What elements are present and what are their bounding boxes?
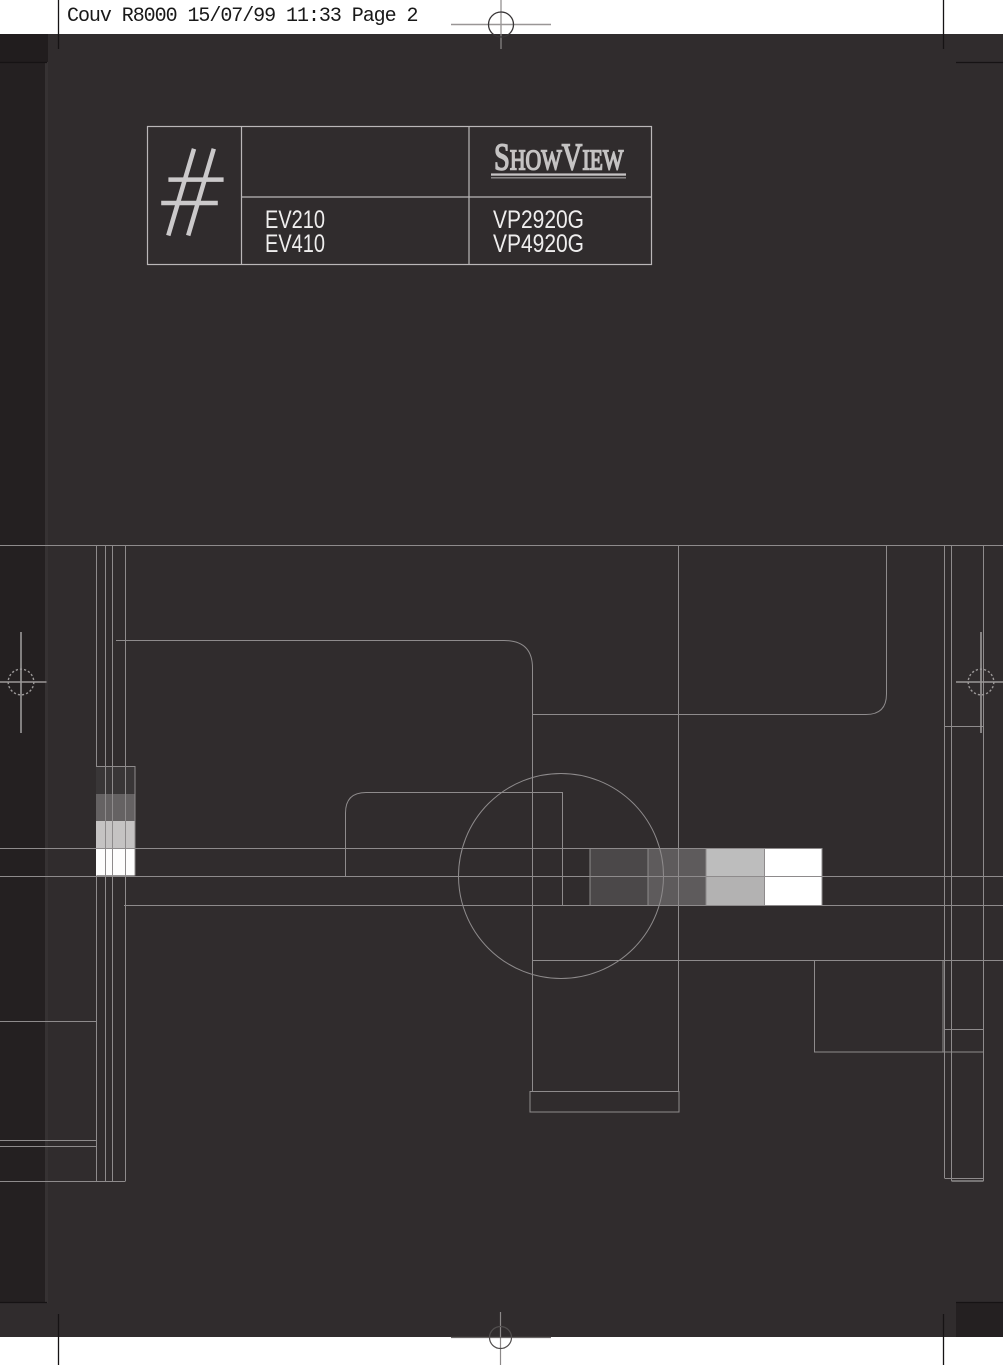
svg-text:EV410: EV410 — [265, 230, 325, 258]
svg-text:S: S — [494, 137, 510, 179]
svg-text:VP4920G: VP4920G — [493, 230, 584, 258]
svg-text:V: V — [562, 137, 583, 179]
svg-text:Couv R8000 15/07/99 11:33 Pa: Couv R8000 15/07/99 11:33 Page 2 — [67, 5, 418, 28]
svg-text:IEW: IEW — [582, 143, 624, 176]
svg-text:HOW: HOW — [510, 143, 563, 176]
